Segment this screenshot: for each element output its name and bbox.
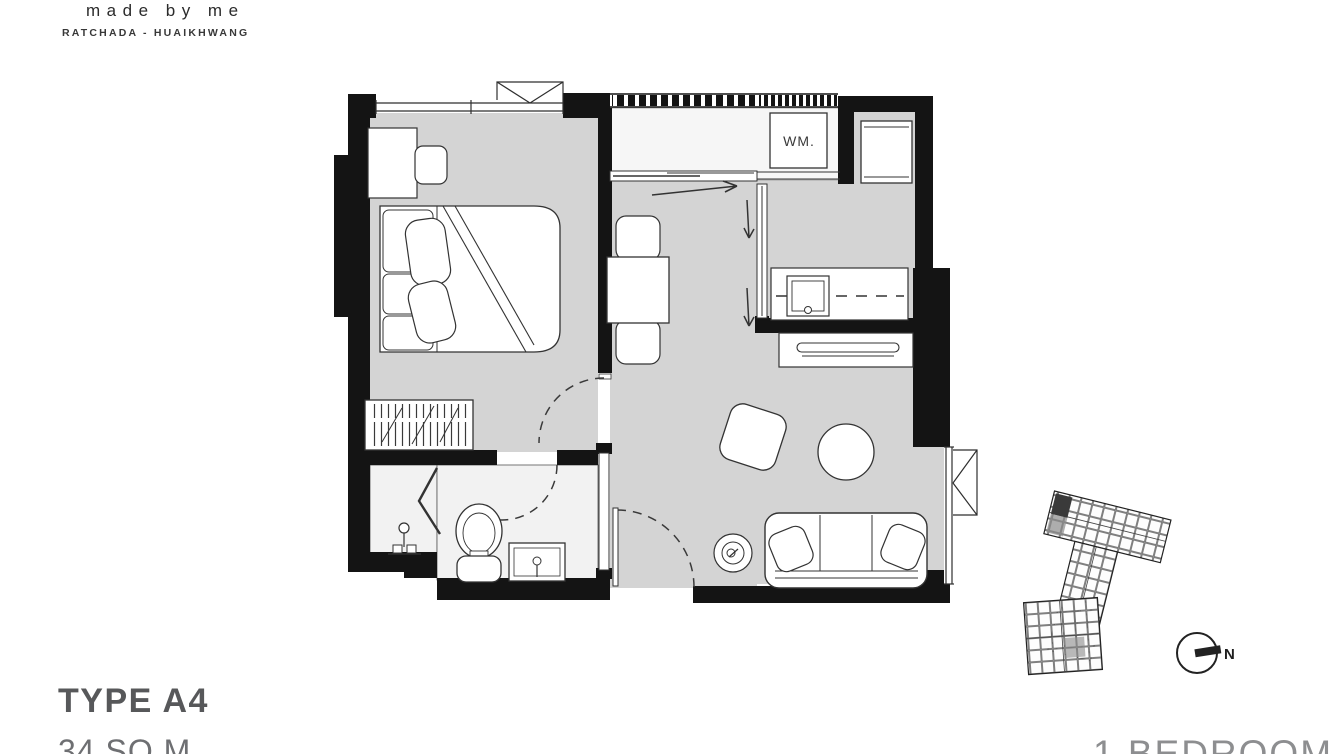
toilet-seat [463, 513, 495, 553]
tv-console [779, 333, 913, 367]
tv [797, 343, 899, 352]
dining-set [607, 216, 669, 364]
desk [368, 128, 417, 198]
sofa [765, 513, 928, 588]
wall-step-block [404, 552, 437, 578]
dining-chair-bottom [616, 320, 660, 364]
site-plan [1017, 491, 1171, 675]
living-window [944, 447, 954, 584]
living-window-opening-icon [953, 450, 977, 515]
bedroom-window [376, 100, 563, 114]
kitchen-counter [771, 268, 908, 320]
wall-partition-cap-top [596, 443, 612, 454]
dining-chair-top [616, 216, 660, 260]
wall-balcony-left [838, 110, 854, 184]
washing-machine-label: WM. [783, 133, 815, 149]
wall-balcony-right [915, 108, 933, 270]
dining-table [607, 257, 669, 323]
unit-type-label: TYPE A4 [58, 682, 209, 721]
north-label: N [1224, 646, 1235, 663]
unit-bedroom-label: 1 BEDROOM [1093, 733, 1333, 754]
bedroom-window-opening-icon [497, 82, 563, 103]
north-compass: N [1177, 633, 1235, 673]
wall-left-shaft [334, 155, 370, 317]
wall-bathroom-jamb [557, 450, 598, 465]
bathroom-partition-wall [599, 453, 609, 570]
sink-faucet-icon [805, 307, 812, 314]
wall-partition-cap-kitchen [755, 316, 769, 333]
counter-hatch-left [612, 95, 755, 106]
wall-bedroom-bathroom [348, 450, 497, 465]
counter-hatch-right [759, 95, 837, 106]
brochure-page: made by me RATCHADA - HUAIKHWANG [0, 0, 1342, 754]
toilet-tank [457, 556, 501, 582]
wall-right-block [913, 268, 950, 447]
floorplan-drawing: WM. [0, 0, 1342, 754]
unit-area-label: 34 SQ.M [58, 733, 191, 754]
entry-door-leaf [613, 508, 618, 586]
wall-bedroom-hallway [598, 108, 612, 373]
round-side-table [818, 424, 874, 480]
balcony [861, 121, 912, 183]
floor-lamp [714, 534, 752, 572]
desk-chair [415, 146, 447, 184]
wardrobe [365, 400, 473, 450]
faucet-icon [533, 557, 541, 565]
ac-unit [861, 121, 912, 183]
